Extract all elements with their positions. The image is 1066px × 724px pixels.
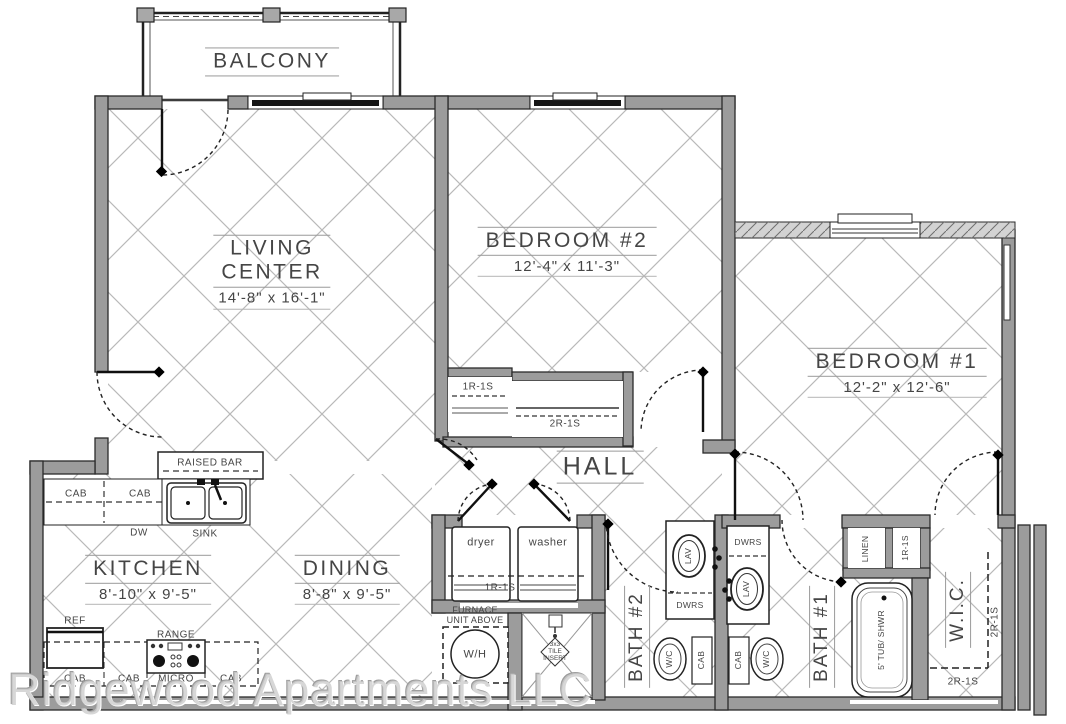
dryer-label: dryer bbox=[467, 537, 495, 550]
laundry-shelf-label: 1R-1S bbox=[485, 582, 516, 594]
room-label-living: LIVING CENTER 14'-8" x 16'-1" bbox=[213, 235, 330, 310]
bedroom1-dims: 12'-2" x 12'-6" bbox=[808, 379, 987, 398]
tile-insert-label: 3x3 TILE INSERT bbox=[543, 642, 567, 662]
lav2-label: LAV bbox=[742, 581, 752, 597]
bedroom2-dims: 12'-4" x 11'-3" bbox=[478, 258, 657, 277]
watermark: Ridgewood Apartments LLC bbox=[8, 664, 592, 716]
linen-label: LINEN bbox=[861, 536, 871, 563]
wc1-label: W/C bbox=[665, 650, 675, 667]
room-label-bedroom2: BEDROOM #2 12'-4" x 11'-3" bbox=[478, 227, 657, 277]
floorplan: BALCONY LIVING CENTER 14'-8" x 16'-1" BE… bbox=[0, 0, 1066, 724]
balcony-name: BALCONY bbox=[205, 47, 339, 76]
sink-label: SINK bbox=[192, 528, 217, 540]
range-label: RANGE bbox=[157, 629, 195, 641]
room-label-wic: W.I.C. bbox=[945, 572, 971, 648]
bath-cab1-label: CAB bbox=[697, 651, 707, 669]
room-label-bath2: BATH #2 bbox=[624, 586, 650, 688]
room-label-bedroom1: BEDROOM #1 12'-2" x 12'-6" bbox=[808, 348, 987, 398]
wic-side-label: 2R-1S bbox=[989, 607, 1001, 638]
refrigerator-label: REF bbox=[64, 615, 86, 627]
dining-name: DINING bbox=[295, 555, 400, 584]
washer-label: washer bbox=[529, 537, 567, 550]
cab-upper-2-label: CAB bbox=[129, 488, 151, 500]
cab-upper-1-label: CAB bbox=[65, 488, 87, 500]
lav1-label: LAV bbox=[684, 548, 694, 564]
bedroom2-name: BEDROOM #2 bbox=[478, 227, 657, 256]
living-name-1: LIVING bbox=[230, 237, 314, 260]
hall-closet-label: 1R-1S bbox=[901, 535, 911, 561]
living-name-2: CENTER bbox=[221, 261, 322, 284]
room-label-dining: DINING 8'-8" x 9'-5" bbox=[295, 555, 400, 605]
kitchen-name: KITCHEN bbox=[85, 555, 211, 584]
room-label-kitchen: KITCHEN 8'-10" x 9'-5" bbox=[85, 555, 211, 605]
bed2-closet2-label: 2R-1S bbox=[550, 418, 581, 430]
raised-bar-label: RAISED BAR bbox=[177, 457, 243, 469]
dwrs1-label: DWRS bbox=[676, 601, 703, 611]
dining-dims: 8'-8" x 9'-5" bbox=[295, 586, 400, 605]
room-label-balcony: BALCONY bbox=[205, 47, 339, 76]
room-label-bath1: BATH #1 bbox=[809, 586, 835, 688]
living-dims: 14'-8" x 16'-1" bbox=[213, 290, 330, 309]
furnace-line1: FURNACE bbox=[452, 605, 498, 615]
dwrs2-label: DWRS bbox=[734, 538, 761, 548]
bed2-closet1-label: 1R-1S bbox=[463, 381, 494, 393]
bath-cab2-label: CAB bbox=[734, 651, 744, 669]
dishwasher-label: DW bbox=[130, 527, 148, 539]
tub-label: 5' TUB/ SHWR bbox=[877, 610, 887, 670]
furnace-label: FURNACE UNIT ABOVE bbox=[447, 606, 504, 626]
kitchen-dims: 8'-10" x 9'-5" bbox=[85, 586, 211, 605]
wc2-label: W/C bbox=[762, 650, 772, 667]
wic-bottom-label: 2R-1S bbox=[948, 676, 979, 688]
furnace-line2: UNIT ABOVE bbox=[447, 615, 504, 625]
wall-slit bbox=[850, 700, 998, 704]
room-label-hall: HALL bbox=[557, 451, 644, 484]
water-heater-label: W/H bbox=[464, 649, 487, 662]
bedroom1-name: BEDROOM #1 bbox=[808, 348, 987, 377]
